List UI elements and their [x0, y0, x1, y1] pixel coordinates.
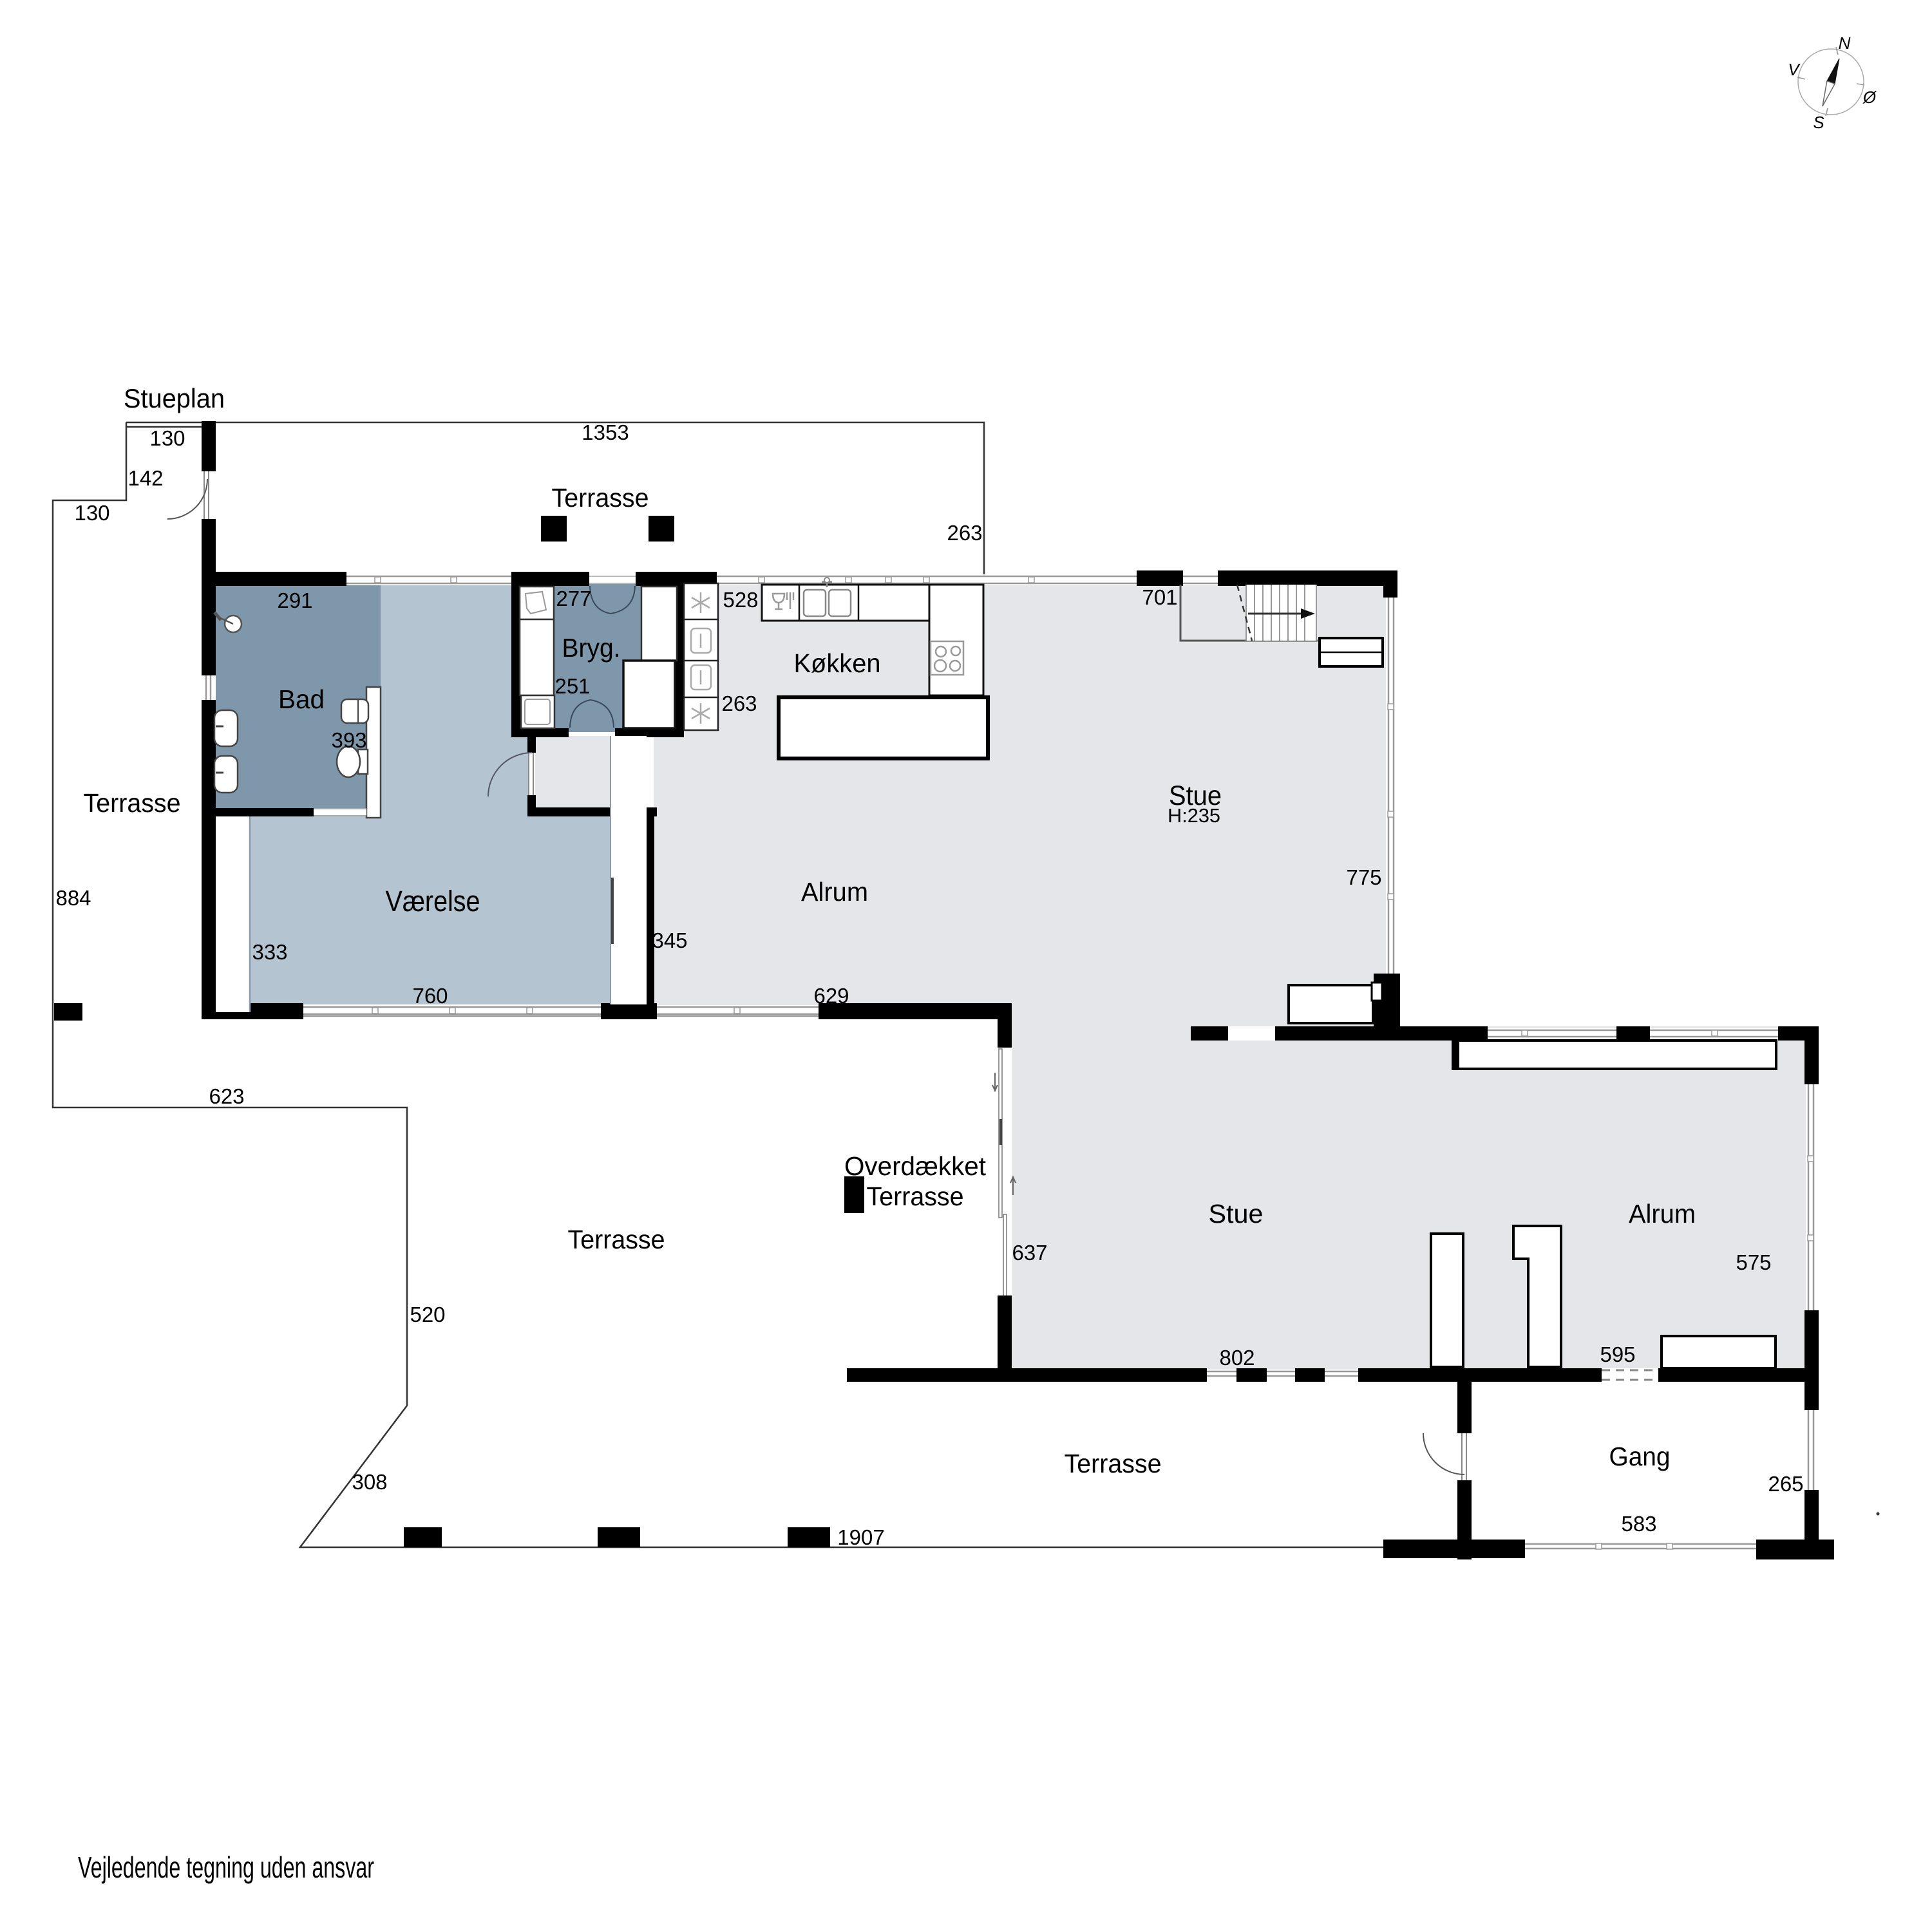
svg-text:629: 629 — [813, 984, 849, 1008]
svg-text:595: 595 — [1600, 1342, 1635, 1366]
svg-text:263: 263 — [947, 521, 982, 545]
svg-text:Terrasse: Terrasse — [84, 788, 181, 818]
svg-text:V: V — [1788, 60, 1801, 79]
svg-text:142: 142 — [128, 466, 163, 490]
svg-text:291: 291 — [277, 589, 312, 612]
svg-text:Terrasse: Terrasse — [568, 1225, 665, 1254]
svg-text:251: 251 — [554, 674, 590, 698]
svg-text:583: 583 — [1621, 1512, 1656, 1536]
svg-text:345: 345 — [652, 928, 687, 952]
svg-text:308: 308 — [352, 1470, 387, 1494]
svg-text:265: 265 — [1768, 1472, 1803, 1496]
svg-text:130: 130 — [149, 426, 185, 450]
svg-text:775: 775 — [1346, 865, 1381, 889]
svg-text:701: 701 — [1142, 585, 1177, 609]
svg-text:393: 393 — [331, 728, 366, 752]
svg-text:333: 333 — [252, 940, 287, 964]
svg-text:575: 575 — [1736, 1250, 1771, 1274]
svg-text:623: 623 — [209, 1084, 244, 1108]
svg-text:Alrum: Alrum — [801, 877, 868, 907]
svg-text:Køkken: Køkken — [794, 648, 881, 678]
svg-text:H:235: H:235 — [1168, 804, 1220, 827]
svg-text:Værelse: Værelse — [386, 885, 480, 918]
svg-text:Terrasse: Terrasse — [867, 1182, 964, 1211]
svg-text:Ø: Ø — [1862, 88, 1877, 107]
svg-text:1353: 1353 — [582, 420, 629, 444]
svg-text:884: 884 — [55, 886, 91, 910]
svg-text:760: 760 — [412, 984, 448, 1008]
svg-text:S: S — [1813, 113, 1824, 132]
svg-text:Bad: Bad — [278, 684, 325, 714]
svg-text:Gang: Gang — [1609, 1442, 1671, 1471]
svg-text:528: 528 — [723, 588, 758, 612]
svg-text:263: 263 — [721, 692, 757, 715]
svg-text:Alrum: Alrum — [1629, 1199, 1696, 1229]
svg-text:Vejledende tegning uden ansvar: Vejledende tegning uden ansvar — [78, 1851, 374, 1884]
svg-text:N: N — [1839, 33, 1851, 53]
svg-text:Stueplan: Stueplan — [124, 383, 225, 413]
svg-text:277: 277 — [556, 587, 591, 610]
svg-text:130: 130 — [74, 501, 109, 525]
svg-text:Terrasse: Terrasse — [1065, 1449, 1162, 1478]
svg-text:637: 637 — [1012, 1241, 1047, 1265]
svg-text:802: 802 — [1219, 1346, 1255, 1370]
svg-text:520: 520 — [410, 1303, 445, 1326]
svg-text:Stue: Stue — [1209, 1199, 1264, 1229]
svg-text:Terrasse: Terrasse — [552, 483, 649, 513]
svg-text:Overdækket: Overdækket — [844, 1151, 987, 1181]
svg-text:1907: 1907 — [837, 1525, 884, 1549]
svg-text:Bryg.: Bryg. — [562, 633, 621, 663]
